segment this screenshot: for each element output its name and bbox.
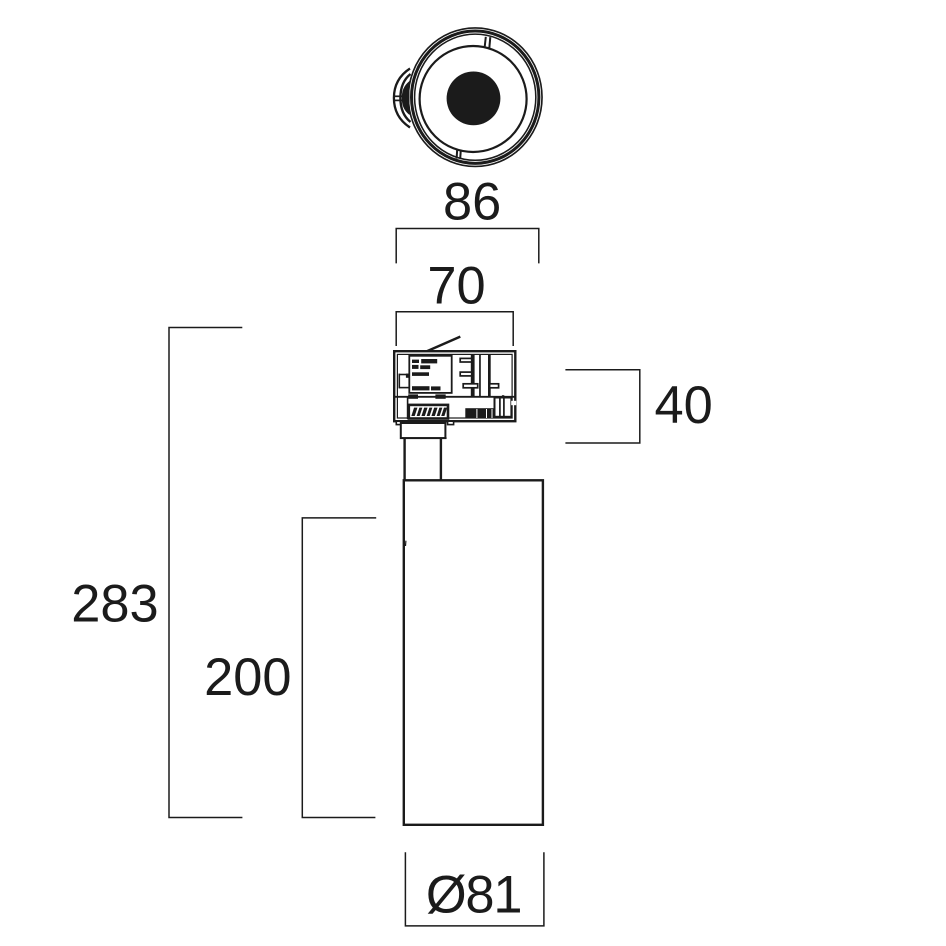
svg-text:70: 70 bbox=[427, 257, 485, 315]
svg-text:86: 86 bbox=[443, 173, 501, 231]
svg-text:Ø81: Ø81 bbox=[426, 867, 521, 925]
svg-text:283: 283 bbox=[71, 575, 158, 633]
svg-text:200: 200 bbox=[204, 649, 291, 707]
svg-text:40: 40 bbox=[655, 377, 713, 435]
